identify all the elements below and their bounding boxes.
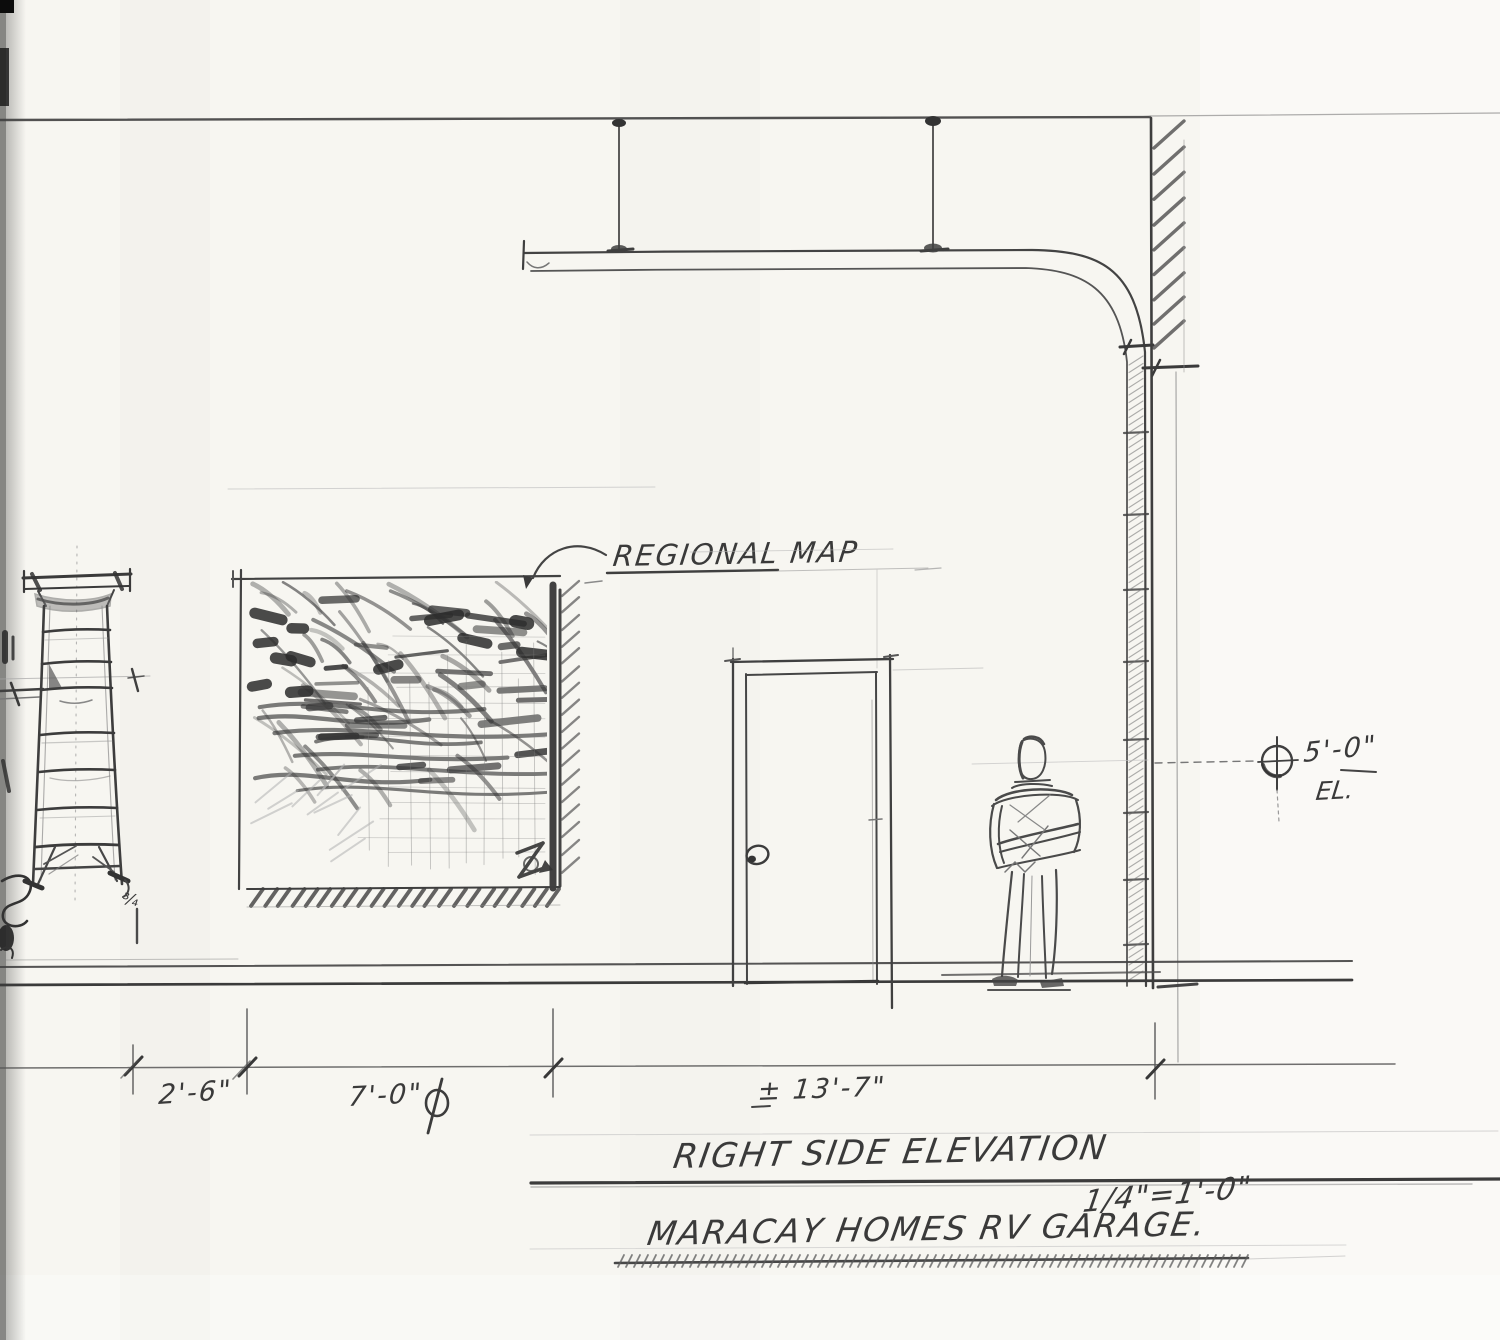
dimension-2ft6: 2'-6" bbox=[158, 1075, 234, 1111]
ladder-fraction-note: ¾ bbox=[121, 889, 139, 910]
scanned-elevation-drawing: ¾ REGIONAL MAP bbox=[0, 0, 1500, 1340]
dimension-7ft0: 7'-0" bbox=[347, 1078, 424, 1113]
elevation-suffix: EL. bbox=[1314, 775, 1355, 806]
dimension-13ft7: ± 13'-7" bbox=[756, 1072, 887, 1107]
regional-map-text: REGIONAL MAP bbox=[611, 535, 861, 573]
scan-artifacts bbox=[0, 0, 26, 1340]
